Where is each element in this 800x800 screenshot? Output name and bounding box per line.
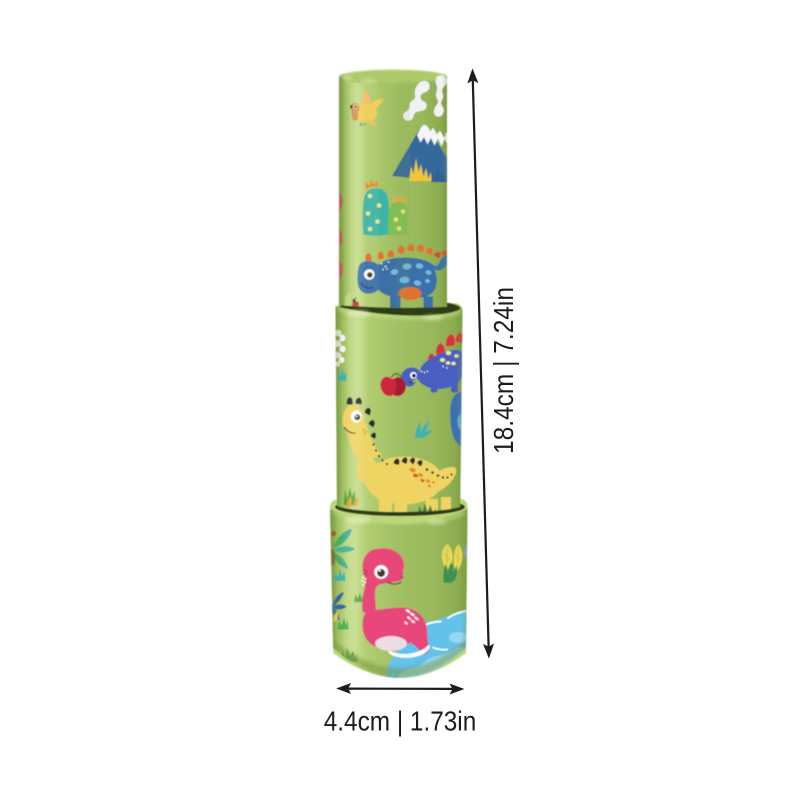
svg-text:4.4cm | 1.73in: 4.4cm | 1.73in bbox=[324, 706, 477, 737]
svg-text:18.4cm | 7.24in: 18.4cm | 7.24in bbox=[488, 287, 519, 454]
